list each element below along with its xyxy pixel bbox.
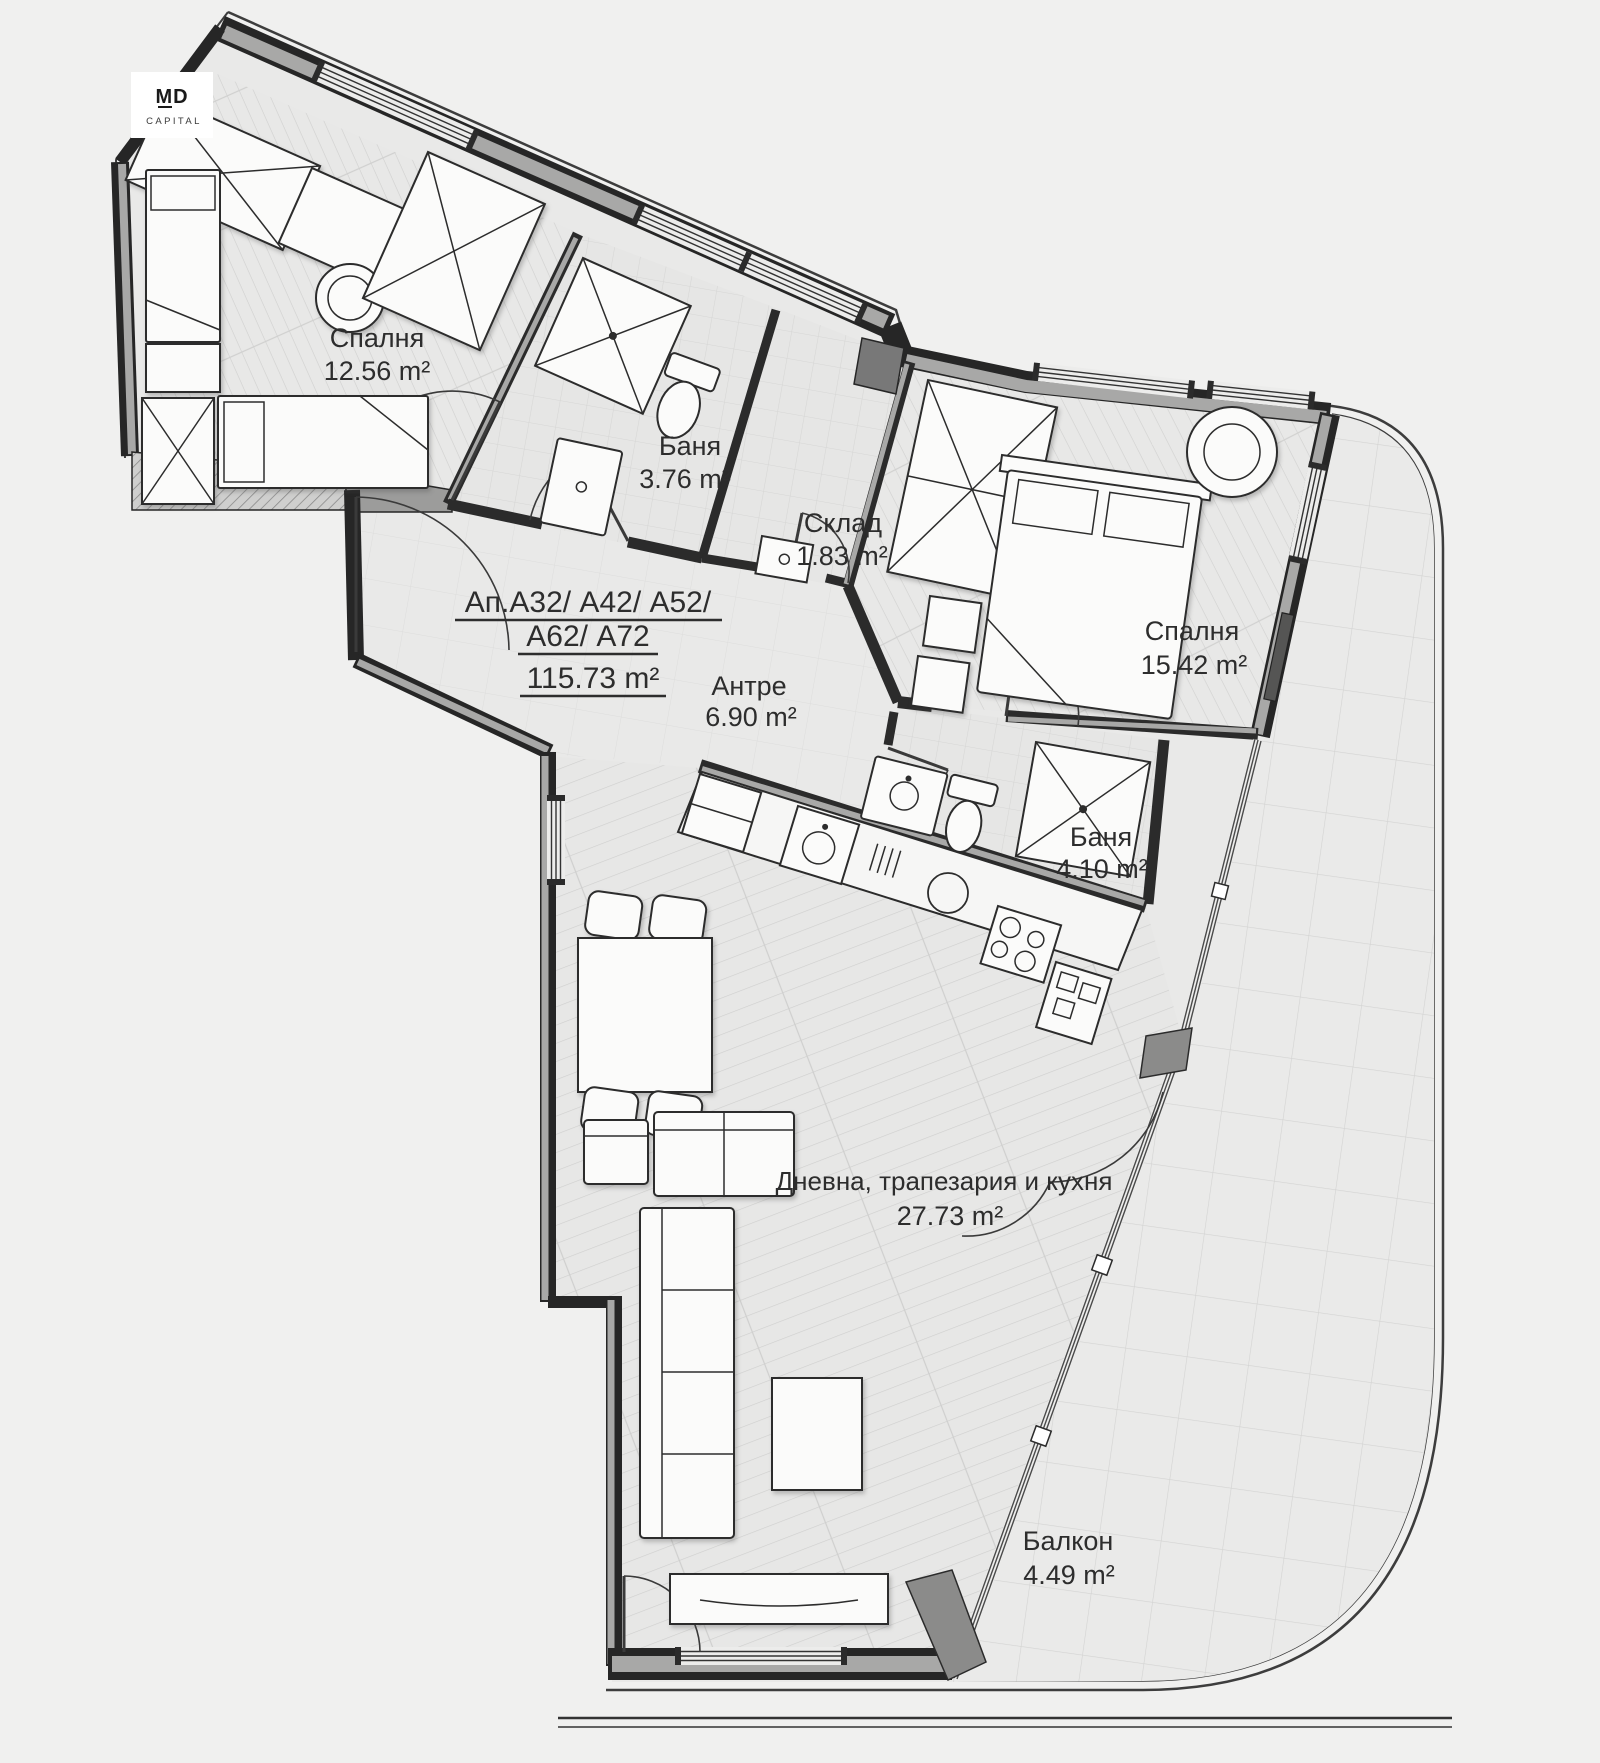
hall-name: Антре	[711, 671, 786, 701]
sofa-long	[640, 1208, 734, 1538]
bed-single-1	[146, 170, 220, 392]
apartment-total-area: 115.73 m²	[527, 662, 660, 695]
glazing-pier-top	[1140, 1028, 1192, 1078]
balcony-area: 4.49 m²	[1023, 1560, 1115, 1590]
apartment-id-line-2: А62/ А72	[526, 620, 649, 653]
duct-block	[854, 338, 904, 394]
living-name: Дневна, трапезария и кухня	[776, 1166, 1113, 1196]
bedroom-1-area: 12.56 m²	[324, 356, 431, 386]
dining-chair	[584, 890, 644, 941]
hall-area: 6.90 m²	[705, 702, 797, 732]
bed-single-2	[218, 396, 428, 488]
apartment-id-line-1: Ап.А32/ А42/ А52/	[465, 586, 712, 619]
floor-plan-svg: Спалня 12.56 m² Баня 3.76 m² Склад 1.83 …	[0, 0, 1600, 1763]
nightstand	[911, 656, 969, 713]
bedroom-2-area: 15.42 m²	[1141, 650, 1248, 680]
double-bed	[969, 455, 1212, 720]
nightstand	[923, 596, 981, 653]
storage-name: Склад	[804, 508, 882, 538]
logo: MD CAPITAL	[131, 72, 213, 138]
bath-1-name: Баня	[659, 431, 721, 461]
storage-area: 1.83 m²	[796, 541, 888, 571]
coffee-table	[772, 1378, 862, 1490]
window	[547, 795, 565, 885]
floor-plan-page: Спалня 12.56 m² Баня 3.76 m² Склад 1.83 …	[0, 0, 1600, 1763]
bedroom-2-name: Спалня	[1145, 616, 1239, 646]
logo-sub-text: CAPITAL	[146, 116, 202, 127]
sofa-two-seat	[654, 1112, 794, 1196]
dining-table	[578, 938, 712, 1092]
living-area: 27.73 m²	[897, 1201, 1004, 1231]
glazing-mullion	[1212, 883, 1229, 900]
balcony-name: Балкон	[1023, 1526, 1114, 1556]
armchair	[584, 1120, 648, 1184]
bath-1-area: 3.76 m²	[639, 464, 731, 494]
cabinet-x	[142, 398, 214, 504]
bath-2-name: Баня	[1070, 822, 1132, 852]
bath-2-area: 4.10 m²	[1056, 854, 1148, 884]
round-chair	[1187, 407, 1277, 497]
bedroom-1-name: Спалня	[330, 323, 424, 353]
logo-brand-text: MD	[155, 86, 188, 108]
tv-stand	[670, 1574, 888, 1624]
window	[675, 1647, 847, 1665]
